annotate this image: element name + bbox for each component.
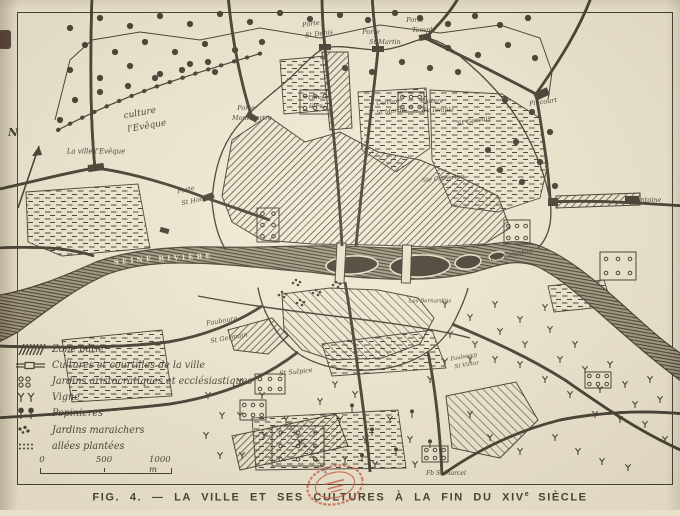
legend-label: Jardins maraichers (52, 424, 144, 436)
legend-label: Pepinieres (52, 408, 103, 420)
legend-item: Vigne (16, 390, 234, 406)
legend-symbol-vigne (16, 391, 52, 404)
scale-tick-500: 500 (96, 455, 112, 465)
legend-label: Vigne (52, 392, 80, 404)
legend-item: Cultures et courtilles de la ville (16, 357, 234, 373)
caption-tail: SIÈCLE (529, 492, 588, 504)
scale-bar-line (40, 468, 172, 474)
compass: N (6, 124, 52, 218)
legend-symbol-zone-batie (16, 343, 52, 356)
legend-label: Jardins aristocratiques et ecclésiastiqu… (52, 376, 252, 388)
legend-label: Zone bâtie (52, 343, 104, 355)
legend-symbol-cultures (16, 359, 52, 372)
legend-item: Zone bâtie (16, 341, 234, 357)
legend-item: Pepinieres (16, 406, 234, 422)
legend: Zone bâtieCultures et courtilles de la v… (16, 341, 234, 454)
legend-symbol-allees (16, 440, 52, 453)
legend-label: Cultures et courtilles de la ville (52, 360, 205, 372)
legend-item: allées plantées (16, 438, 234, 454)
legend-symbol-maraichers (16, 424, 52, 437)
legend-item: Jardins aristocratiques et ecclésiastiqu… (16, 373, 234, 389)
legend-item: Jardins maraichers (16, 422, 234, 438)
legend-label: allées plantées (52, 440, 124, 452)
legend-symbol-pepinieres (16, 407, 52, 420)
legend-symbol-jardins-aristo (16, 375, 52, 388)
ink-blot (0, 30, 11, 49)
scale-tick-0: 0 (39, 455, 44, 465)
scale-bar-midtick (104, 468, 105, 472)
compass-label: N (8, 126, 18, 139)
scale-bar: 0 500 1000 m (38, 455, 188, 479)
